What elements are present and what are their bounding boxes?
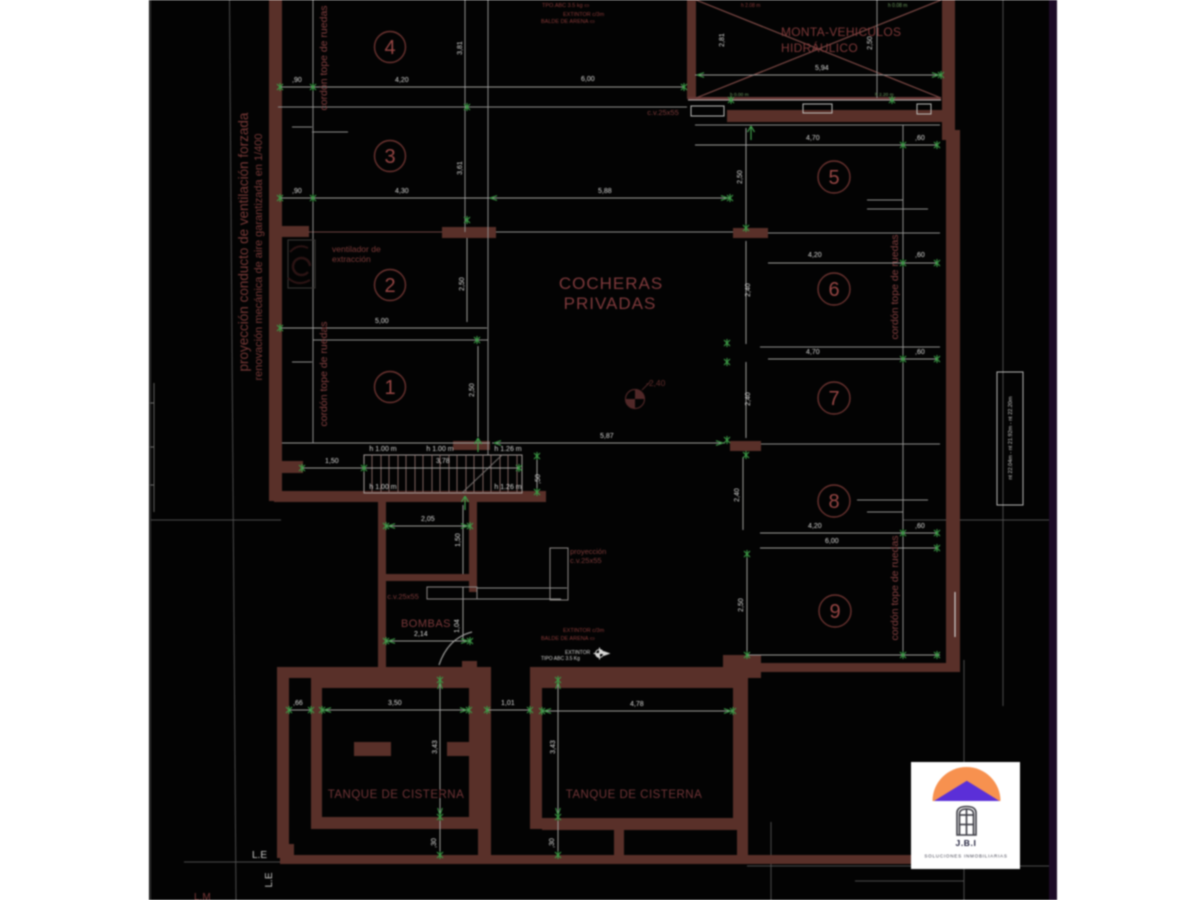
svg-text:h 0.00 m: h 0.00 m [730,92,749,98]
svg-text:h 2.20 m: h 2.20 m [875,92,894,98]
svg-text:cordón tope de ruedas: cordón tope de ruedas [318,5,330,110]
svg-text:4,70: 4,70 [806,135,820,142]
svg-text:proyección: proyección [570,547,606,556]
svg-text:,30: ,30 [431,838,438,848]
svg-text:nt 22.04m - nt 21.92m - nt 22.: nt 22.04m - nt 21.92m - nt 22.20m [1008,396,1014,480]
svg-text:h 1.00 m: h 1.00 m [426,446,453,453]
svg-text:,90: ,90 [292,188,302,195]
svg-text:h 1.00 m: h 1.00 m [369,484,396,491]
svg-text:3,78: 3,78 [436,458,450,465]
svg-text:1,04: 1,04 [454,619,461,633]
svg-text:3,43: 3,43 [550,740,557,754]
svg-text:BALDE DE ARENA ▭: BALDE DE ARENA ▭ [541,19,596,25]
svg-text:HIDRÁULICO: HIDRÁULICO [781,40,858,55]
svg-text:renovación mecánica de aire ga: renovación mecánica de aire garantizada … [253,133,265,380]
svg-text:2,50: 2,50 [737,170,744,184]
svg-text:5,87: 5,87 [600,433,614,440]
svg-text:2,40: 2,40 [745,392,752,406]
svg-text:,50: ,50 [535,474,542,484]
svg-text:L.E: L.E [264,872,275,887]
svg-text:h 2.08 m: h 2.08 m [741,3,760,9]
svg-text:4: 4 [384,37,395,59]
svg-text:proyección conducto de ventila: proyección conducto de ventilación forza… [236,112,251,371]
svg-text:2,50: 2,50 [469,383,476,397]
svg-text:MONTA-VEHICULOS: MONTA-VEHICULOS [781,25,901,39]
svg-text:h 1.26 m: h 1.26 m [494,484,521,491]
svg-text:COCHERAS: COCHERAS [559,274,663,293]
svg-text:3,81: 3,81 [457,41,464,55]
svg-text:5,94: 5,94 [815,65,829,72]
svg-text:1: 1 [384,377,395,399]
svg-text:2,40: 2,40 [745,283,752,297]
svg-text:BALDE DE ARENA ▭: BALDE DE ARENA ▭ [541,636,596,642]
svg-text:h 1.26 m: h 1.26 m [494,446,521,453]
svg-text:2,50: 2,50 [459,277,466,291]
svg-text:,60: ,60 [915,135,925,142]
svg-text:6: 6 [828,279,839,301]
svg-text:-2,40: -2,40 [646,378,666,388]
svg-text:c.v.25x55: c.v.25x55 [647,108,679,117]
svg-text:c.v.25x55: c.v.25x55 [387,592,419,601]
svg-text:7: 7 [828,388,839,410]
svg-text:4,30: 4,30 [395,188,409,195]
svg-text:c.v.25x55: c.v.25x55 [570,556,602,565]
svg-text:3,61: 3,61 [457,161,464,175]
svg-text:2,40: 2,40 [734,488,741,502]
svg-text:TIPO ABC 3.5 Kg: TIPO ABC 3.5 Kg [541,656,580,662]
svg-text:3,43: 3,43 [432,740,439,754]
svg-text:1,50: 1,50 [325,458,339,465]
svg-text:SOLUCIONES INMOBILIARIAS: SOLUCIONES INMOBILIARIAS [924,854,1007,859]
svg-text:,90: ,90 [292,77,302,84]
svg-text:,66: ,66 [293,700,303,707]
svg-text:h 0.08 m: h 0.08 m [888,3,907,9]
svg-text:5,88: 5,88 [598,188,612,195]
svg-text:TANQUE DE CISTERNA: TANQUE DE CISTERNA [328,789,465,801]
svg-text:3: 3 [384,146,395,168]
svg-text:1,50: 1,50 [455,533,462,547]
svg-text:2: 2 [384,275,395,297]
svg-text:TPO.ABC 3.5 kg ▭: TPO.ABC 3.5 kg ▭ [542,3,590,9]
svg-text:9: 9 [829,601,840,623]
svg-text:6,00: 6,00 [581,76,595,83]
svg-text:L.M: L.M [194,892,211,900]
svg-text:6,00: 6,00 [825,538,839,545]
svg-text:cordón tope de ruedas: cordón tope de ruedas [889,535,901,640]
svg-text:4,70: 4,70 [806,349,820,356]
svg-text:,60: ,60 [915,349,925,356]
svg-text:5,00: 5,00 [375,318,389,325]
svg-text:2,81: 2,81 [719,33,726,47]
svg-text:L.E: L.E [252,850,267,861]
svg-text:4,20: 4,20 [395,77,409,84]
svg-text:4,20: 4,20 [808,252,822,259]
svg-text:8: 8 [828,491,839,513]
svg-text:cordón tope de ruedas: cordón tope de ruedas [318,321,330,426]
svg-text:5: 5 [828,167,839,189]
svg-text:EXTINTOR c/3m: EXTINTOR c/3m [563,628,605,634]
svg-text:h 1.00 m: h 1.00 m [369,446,396,453]
svg-text:4,20: 4,20 [808,523,822,530]
svg-text:TANQUE DE CISTERNA: TANQUE DE CISTERNA [566,789,703,801]
svg-text:ventilador de: ventilador de [332,244,381,254]
svg-text:2,05: 2,05 [421,516,435,523]
svg-text:,60: ,60 [915,523,925,530]
svg-text:PRIVADAS: PRIVADAS [564,294,657,313]
svg-text:,60: ,60 [915,252,925,259]
svg-text:BOMBAS: BOMBAS [401,618,451,630]
svg-text:EXTINTOR c/3m: EXTINTOR c/3m [563,12,605,18]
svg-text:J.B.I: J.B.I [956,838,977,848]
svg-text:3,50: 3,50 [388,700,402,707]
svg-text:,30: ,30 [549,838,556,848]
svg-text:cordón tope de ruedas: cordón tope de ruedas [889,234,901,339]
svg-text:2,50: 2,50 [738,598,745,612]
svg-text:1,01: 1,01 [501,700,515,707]
svg-text:extracción: extracción [332,254,371,264]
svg-text:2,14: 2,14 [414,631,428,638]
svg-text:4,78: 4,78 [630,701,644,708]
